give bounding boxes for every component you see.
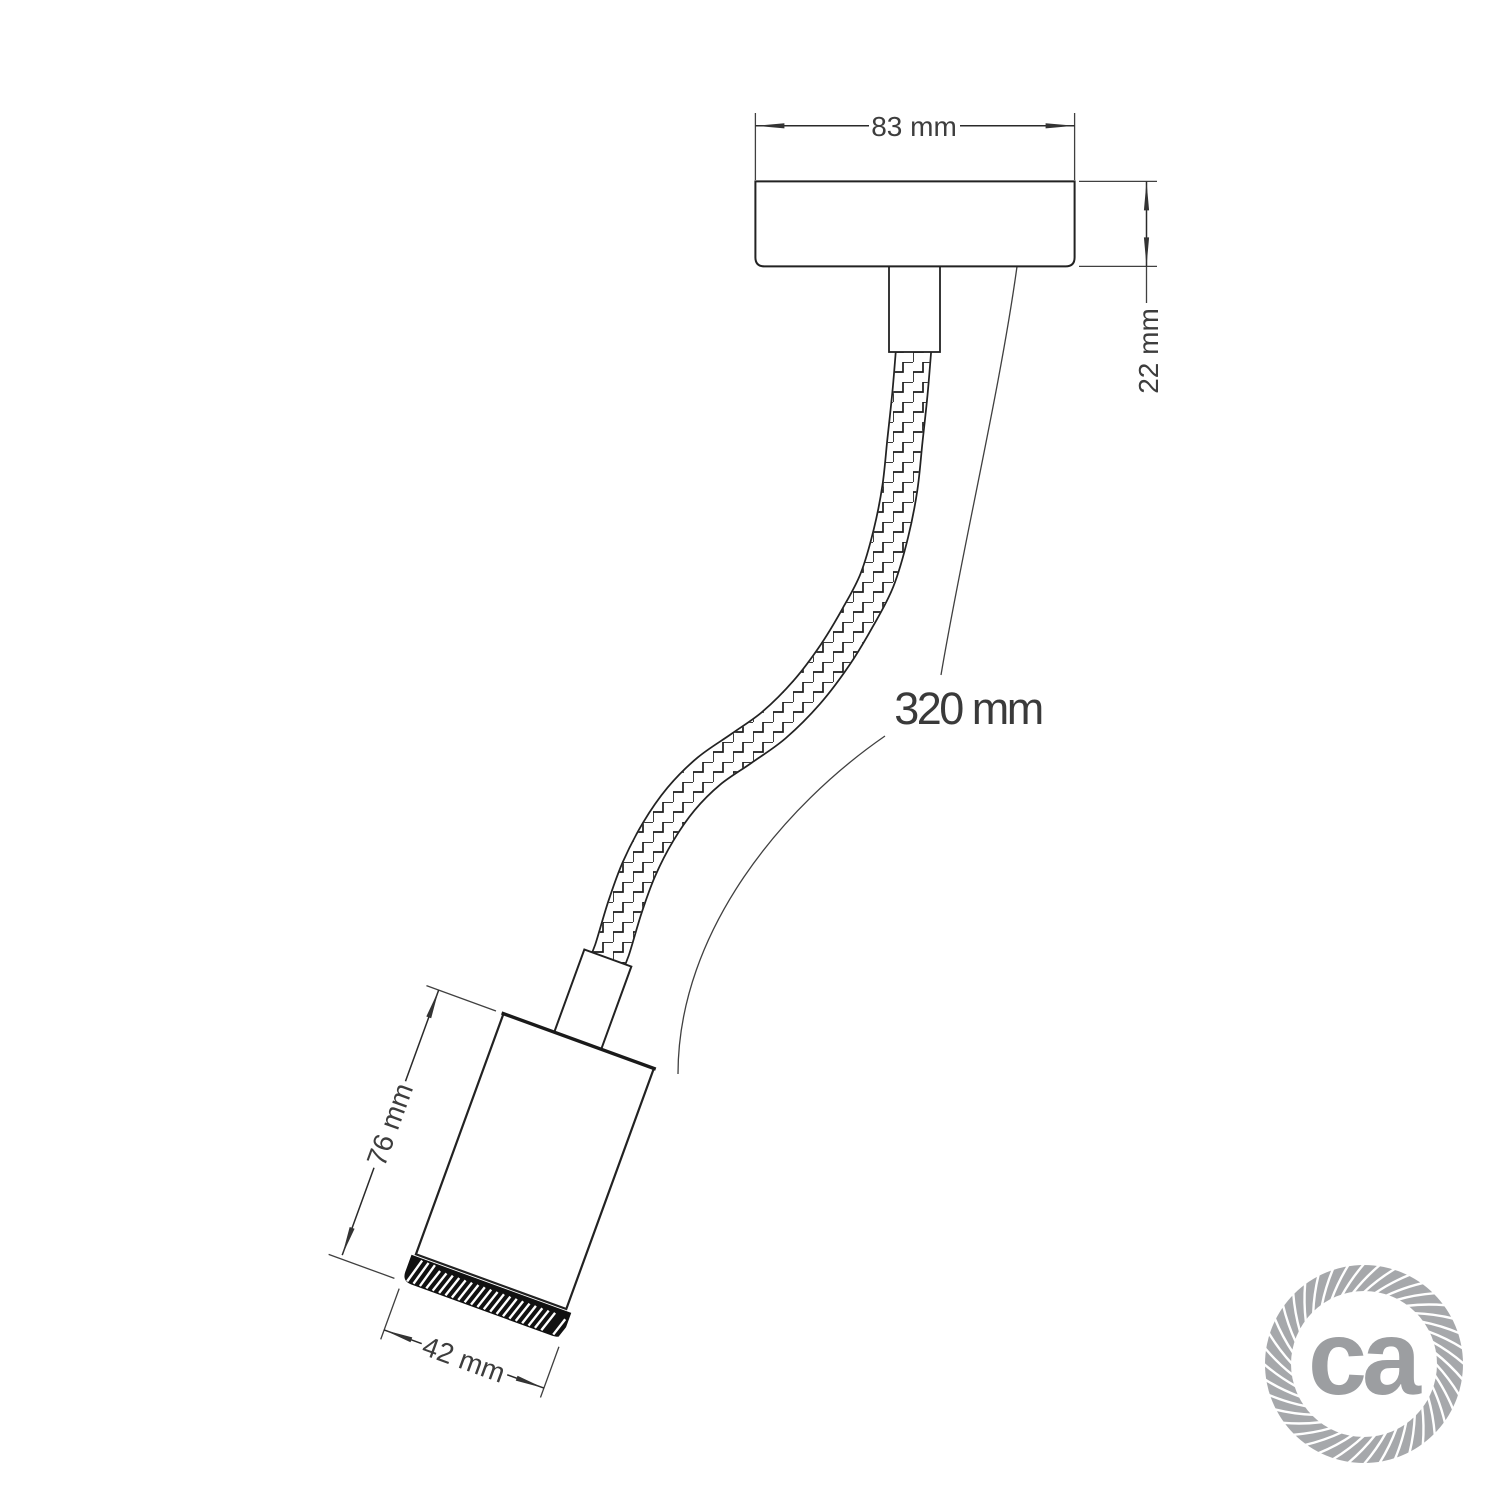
svg-text:22 mm: 22 mm: [1133, 308, 1164, 394]
svg-text:320 mm: 320 mm: [894, 683, 1042, 734]
svg-text:83 mm: 83 mm: [871, 111, 957, 142]
svg-text:ca: ca: [1308, 1299, 1422, 1417]
